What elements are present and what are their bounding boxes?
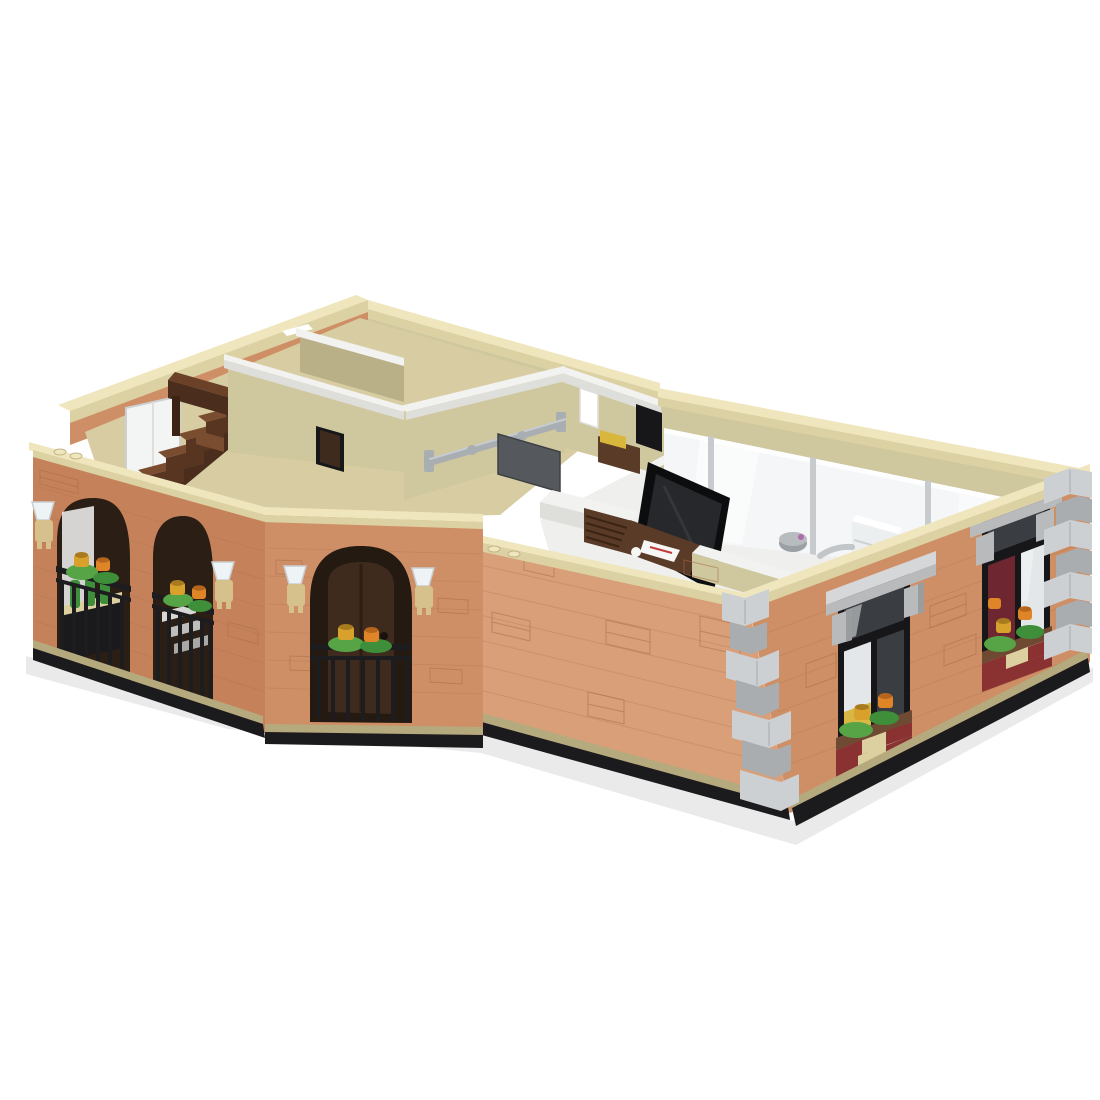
orange-flower	[1018, 606, 1032, 620]
waste-bin	[779, 532, 807, 552]
white-door	[580, 388, 598, 428]
stud	[488, 546, 500, 552]
arched-doorway	[310, 546, 412, 723]
door-knob	[380, 632, 388, 640]
orange-flower	[192, 585, 206, 599]
orange-flower	[878, 693, 893, 708]
glass-mullion	[810, 457, 816, 555]
lego-building-render	[0, 0, 1100, 1100]
render-canvas	[0, 0, 1100, 1100]
inner-flower	[988, 598, 1001, 609]
rear-coping-white-tile	[384, 286, 418, 298]
stud	[508, 551, 520, 557]
arched-opening	[152, 516, 214, 706]
rail-coupler	[467, 445, 477, 455]
cup	[631, 547, 641, 557]
stud	[70, 453, 82, 459]
bar-leg	[172, 396, 180, 436]
purple-flower	[798, 534, 804, 540]
orange-flower	[96, 557, 110, 571]
gold-flower	[170, 580, 185, 595]
orange-flower	[364, 627, 379, 642]
gold-flower	[338, 624, 354, 640]
interior-door	[320, 430, 340, 468]
gold-flower	[854, 704, 870, 720]
stud	[54, 449, 66, 455]
corner-bay-facade	[262, 507, 483, 748]
gold-flower	[996, 618, 1011, 633]
gold-flower	[74, 552, 89, 567]
